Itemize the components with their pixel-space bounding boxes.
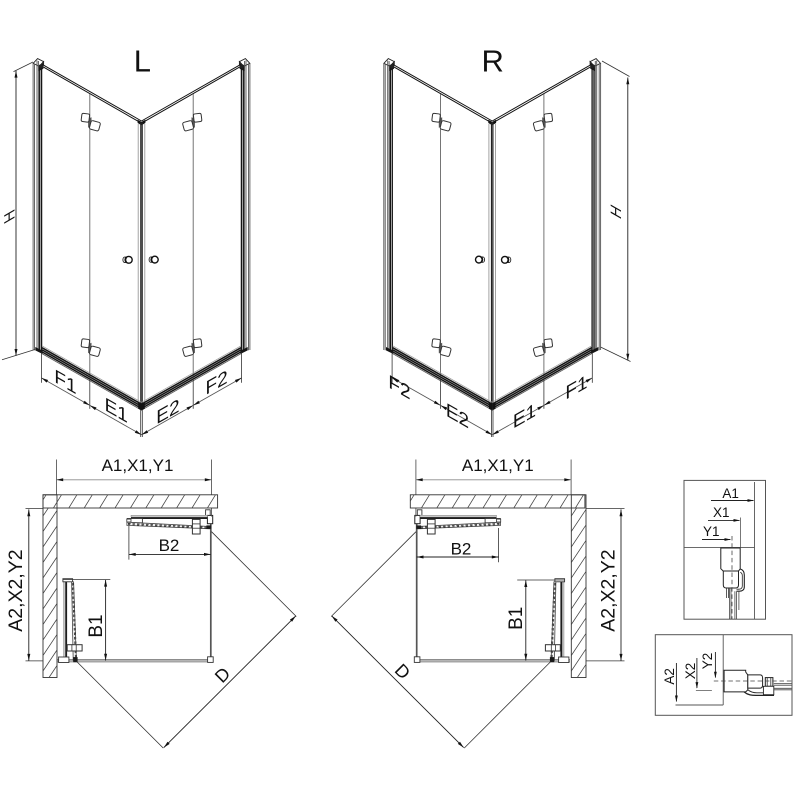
svg-text:A2: A2 <box>662 668 677 685</box>
svg-text:Y1: Y1 <box>703 524 720 539</box>
svg-text:B1: B1 <box>86 614 107 637</box>
svg-text:Y2: Y2 <box>700 653 715 670</box>
svg-text:A1: A1 <box>722 486 739 501</box>
svg-text:B2: B2 <box>451 540 472 559</box>
svg-text:X2: X2 <box>683 663 698 680</box>
svg-text:R: R <box>482 44 504 79</box>
svg-text:L: L <box>134 44 151 79</box>
svg-text:A2,X2,Y2: A2,X2,Y2 <box>597 549 619 631</box>
svg-text:B1: B1 <box>506 607 527 630</box>
svg-text:A1,X1,Y1: A1,X1,Y1 <box>462 456 534 475</box>
svg-text:B2: B2 <box>159 536 180 555</box>
svg-text:A2,X2,Y2: A2,X2,Y2 <box>5 549 27 631</box>
svg-text:A1,X1,Y1: A1,X1,Y1 <box>102 456 174 475</box>
svg-text:X1: X1 <box>713 505 730 520</box>
